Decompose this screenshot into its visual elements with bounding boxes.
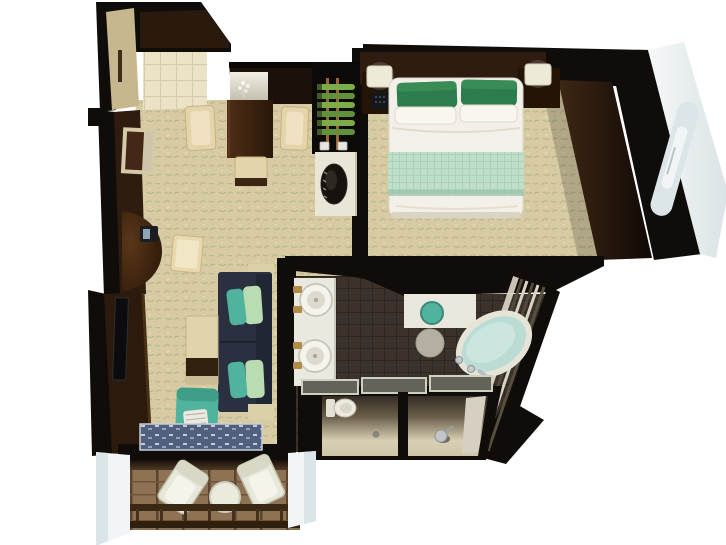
area-rug [140,424,262,450]
sofa-armrest-bottom [248,404,274,420]
floor-plan-render [0,0,726,545]
tv-screen [113,298,129,380]
bed-runner [388,152,524,194]
vanity-stool [421,302,443,324]
wall-mirror [121,127,156,175]
dining-bench [235,157,267,186]
wine-rack [312,62,360,154]
white-pillow [395,107,456,124]
white-pillow [460,105,517,122]
bulkhead-left [96,452,130,545]
toilet [326,399,356,417]
balcony [96,451,316,545]
round-rug [416,329,444,357]
bar-counter [315,152,357,216]
entry-door-header [140,10,229,48]
gold-faucet [293,362,302,369]
bedside-phone [371,92,390,109]
double-bed [388,78,524,218]
dining-table [227,100,273,158]
water-closet [322,396,398,456]
gold-faucet [293,342,302,349]
desk-phone [140,226,158,242]
side-table [186,316,218,384]
shower-room [408,396,488,456]
wine-glass [338,142,347,150]
dining-chair-left [185,105,216,150]
dining-chair-right [280,107,308,151]
sofa [218,264,274,420]
wet-room-divider [398,392,408,458]
gold-faucet [293,306,302,313]
wine-glass [320,142,329,150]
desk-stool [170,235,203,273]
gold-faucet [293,286,302,293]
bulkhead-right [288,451,316,528]
floor-plan-stage [0,0,726,545]
sofa-cushion-mint [245,360,265,399]
floor-drain [372,430,380,438]
entry-door-handle [118,50,122,82]
vanity [293,278,336,386]
